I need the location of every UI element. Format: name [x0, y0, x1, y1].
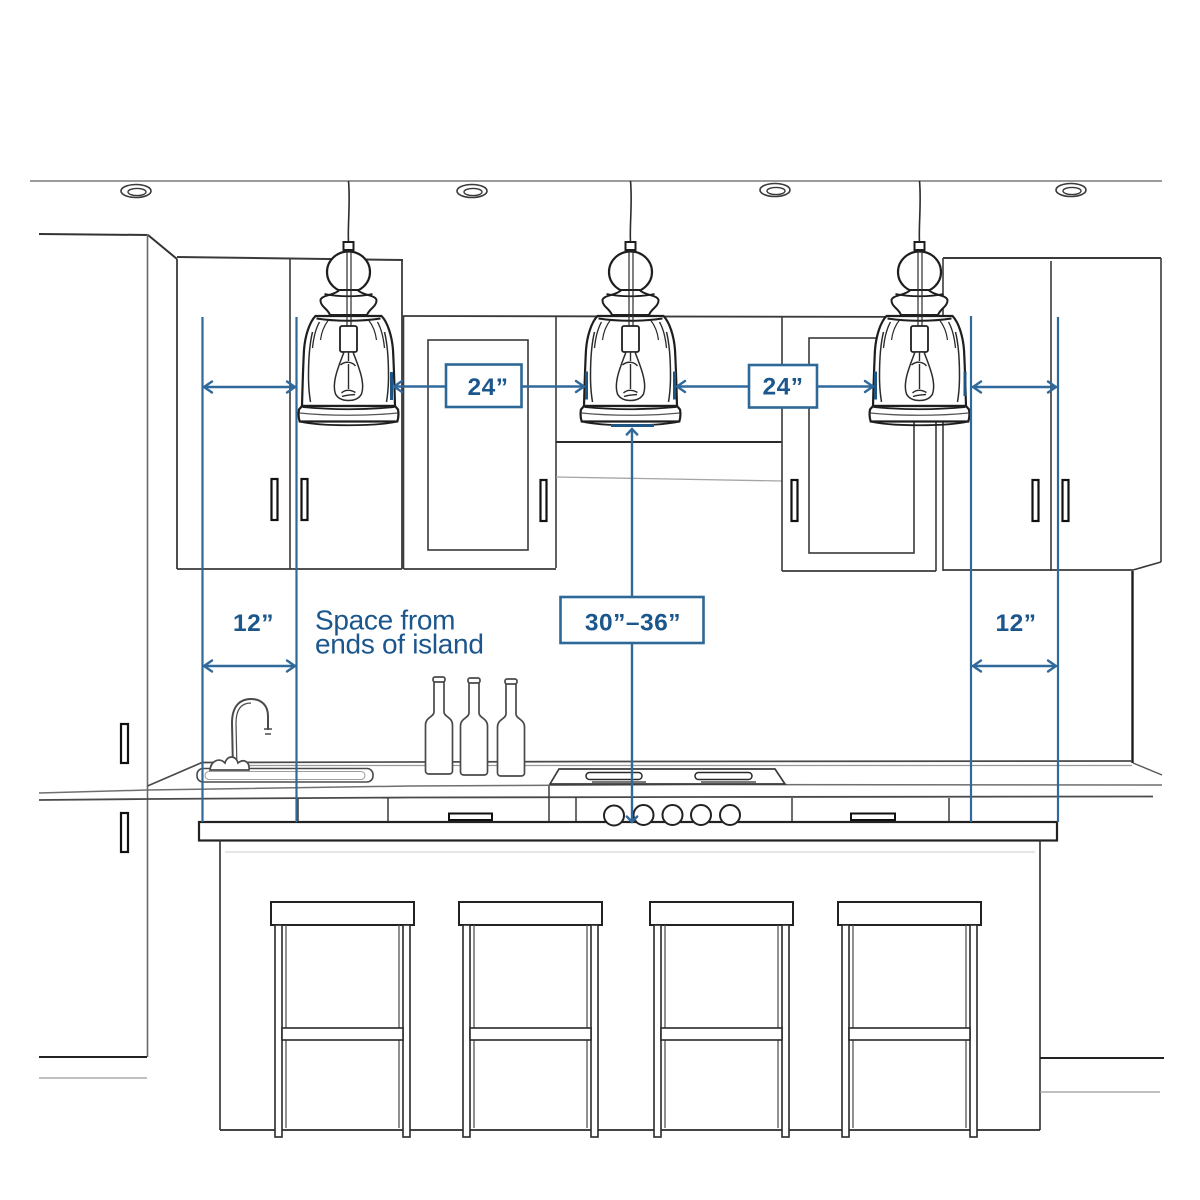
svg-text:12”: 12” [995, 610, 1036, 637]
svg-text:24”: 24” [467, 374, 508, 401]
svg-text:12”: 12” [233, 610, 274, 637]
svg-text:ends of island: ends of island [315, 629, 484, 660]
svg-text:30”–36”: 30”–36” [585, 610, 681, 637]
svg-text:24”: 24” [762, 374, 803, 401]
